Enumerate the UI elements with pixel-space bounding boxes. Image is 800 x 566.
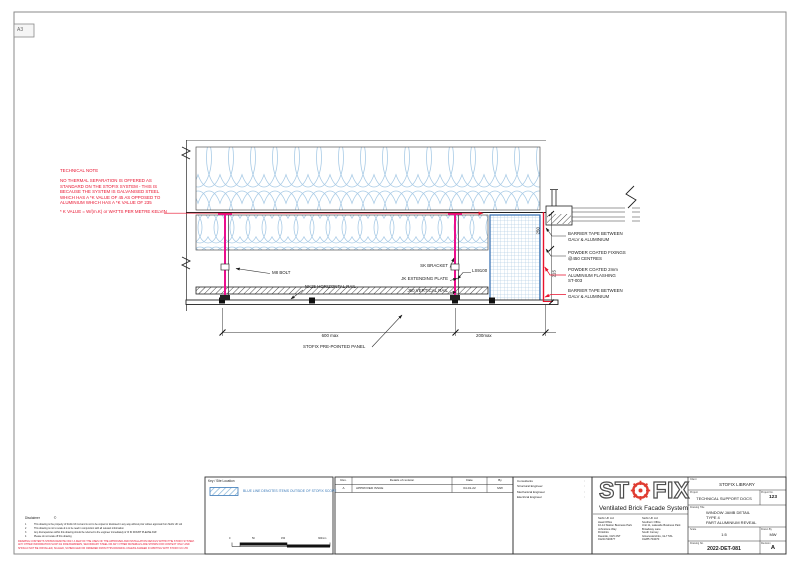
callout-jk-plate: JK EXTENDING PLATE [386,276,448,282]
key-title: Key / Site Location [208,479,235,483]
dimension-200-max: 200max [476,333,492,339]
scalebar-label: 150 [281,537,285,540]
technical-note-body: NO THERMAL SEPARATION IS OFFERED AS STAN… [60,178,160,206]
project-label: Project [690,491,698,494]
brick-panel-outside-scope [490,215,540,301]
sheet-border [14,12,786,554]
project-no-label: Project No. [761,491,773,494]
technical-note-line: ALUMINIUM WHICH HAS A *K VALUE OF 235 [60,200,160,206]
horizontal-dimension [220,304,557,336]
client-value: STOFIX LIBRARY [688,482,786,488]
dimension-215: 215 [551,264,557,284]
pre-pointed-panel [186,300,558,305]
revision-header-by: By [487,479,513,483]
revision-cell-date: 04-01-22 [452,487,487,491]
project-no-value: 123 [760,495,786,501]
scale-bar [232,543,330,548]
callout-nk25-rail: NK25 HORIZONTAL RAIL [305,284,356,290]
revision-header-details: Details of revision [352,479,452,483]
scalebar-label: 300mm [318,537,326,540]
logo-text-left: ST [599,479,629,502]
drawn-by-value: MW [760,532,786,537]
callout-j60-rail: J60 VERTICAL RAIL [393,288,448,294]
technical-note-footnote: * K VALUE = W/(m.K) or WATTS PER METRE K… [60,209,167,215]
scalebar-label: 50 [252,537,255,540]
project-value: TECHNICAL SUPPORT DOCS [688,496,760,501]
dimension-600-max: 600 max [300,333,360,339]
callout-panel: STOFIX PRE-POINTED PANEL [303,344,365,350]
window-jamb-detail [544,190,641,303]
disclaimer-warning: DRAWING CONTENTS SHOWN DENOTE ONLY A FEW… [18,540,198,550]
consultant-row: Electrical Engineer: [517,495,585,500]
callout-fixings: POWDER COATED FIXINGS@450 CENTRES [568,250,626,261]
revision-value: A [760,545,786,552]
key-swatch [210,488,238,496]
dimension-250: 250 [535,221,541,241]
insulation-band-lower [196,215,488,250]
callout-sk-bracket: SK BRACKET [408,263,448,269]
stofix-logo: ST FIX [599,479,690,502]
consultants-block: Consultants: Structural Engineer: Mechan… [517,479,585,501]
address-left: Stofix UK LtdHead Office 10-14 Station B… [598,517,632,542]
logo-tagline: Ventilated Brick Facade System [599,505,688,513]
callout-barrier-tape-upper: BARRIER TAPE BETWEENGALV & ALUMINIUM [568,231,623,242]
revision-header-rev: Rev. [335,479,352,483]
technical-note-title: TECHNICAL NOTE [60,168,98,174]
drawn-by-label: Drawn By [761,528,772,531]
revision-cell-details: APPROVED ISSUE [356,487,383,491]
callout-ls9100: LS9100 [472,268,487,274]
scalebar-label: 0 [229,537,230,540]
disclaimer-items: 1This drawing is the property of Stofix … [25,523,182,538]
revision-header-date: Date [452,479,487,483]
drawing-sheet: A3 TECHNICAL NOTE NO THERMAL SEPARATION … [0,0,800,566]
drawing-no-value: 2022-DET-081 [688,546,760,553]
copyright-symbol: © [54,516,56,520]
gear-icon [630,480,651,501]
facade-section-linework [186,140,558,311]
logo-text-right: FIX [652,479,689,502]
address-right: Stofix UK LtdSouthern Office Unit 11, La… [642,517,681,542]
scale-label: Scale [690,528,696,531]
callout-barrier-tape-lower: BARRIER TAPE BETWEENGALV & ALUMINIUM [568,288,623,299]
sheet-format-label: A3 [17,27,23,33]
drawing-title-label: Drawing Title [690,506,704,509]
key-legend-text: BLUE LINE DENOTES ITEMS OUTSIDE OF STOFI… [243,489,337,493]
scale-value: 1:5 [688,532,760,537]
callout-flashing: POWDER COATED 2mmALUMINIUM FLASHINGST-00… [568,267,618,284]
client-label: Client [690,478,696,481]
revision-cell-by: MW [487,487,513,491]
technical-note-line: BECAUSE THE SYSTEM IS GALVANISED STEEL [60,189,160,195]
drawing-title-value: WINDOW JAMB DETAIL TYPE 4 PART ALUMINIUM… [706,510,756,526]
disclaimer-item: 4Please do not scale off this drawing [25,535,182,539]
disclaimer-title-row: Disclaimer © [25,516,56,520]
technical-note-line: NO THERMAL SEPARATION IS OFFERED AS [60,178,160,184]
callout-m8-bolt: M8 BOLT [272,270,290,276]
disclaimer-title: Disclaimer [25,516,40,520]
revision-cell-rev: A [335,487,352,491]
insulation-band-upper [196,147,540,210]
